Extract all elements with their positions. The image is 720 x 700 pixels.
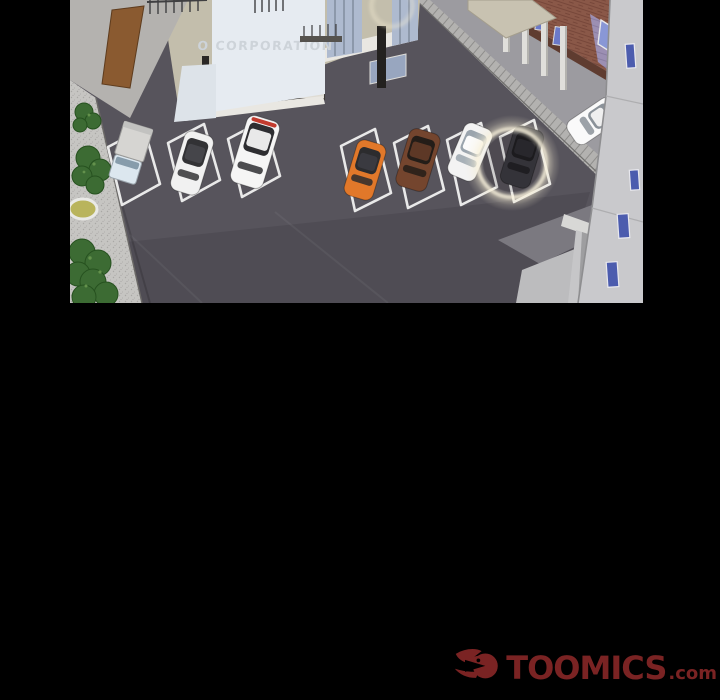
comic-page: O CORPORATION xyxy=(0,0,720,700)
comic-panel[interactable]: O CORPORATION xyxy=(70,0,643,303)
parking-scene-illustration: O CORPORATION xyxy=(70,0,643,303)
planter xyxy=(70,199,97,219)
spotlight-highlight xyxy=(464,115,560,211)
toomics-logo-icon xyxy=(453,647,501,683)
toomics-watermark: TOOMICS .com xyxy=(453,647,717,684)
building-facade xyxy=(212,0,325,112)
pillar xyxy=(377,26,386,88)
toomics-logo-suffix: .com xyxy=(668,665,717,684)
toomics-logo-text: TOOMICS xyxy=(506,652,666,684)
